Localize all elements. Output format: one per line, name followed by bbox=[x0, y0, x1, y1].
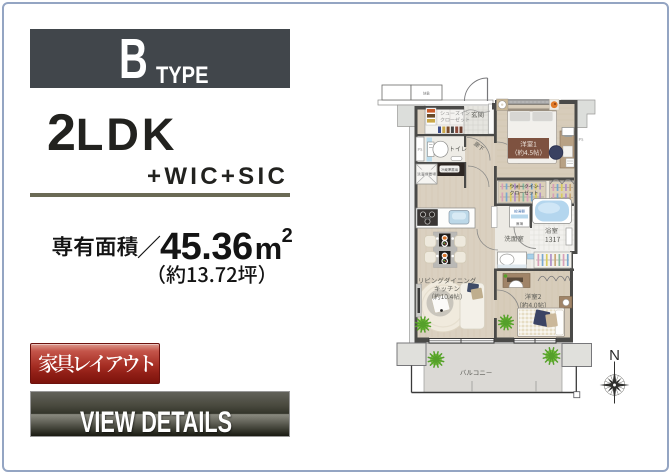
svg-text:N: N bbox=[609, 347, 620, 364]
